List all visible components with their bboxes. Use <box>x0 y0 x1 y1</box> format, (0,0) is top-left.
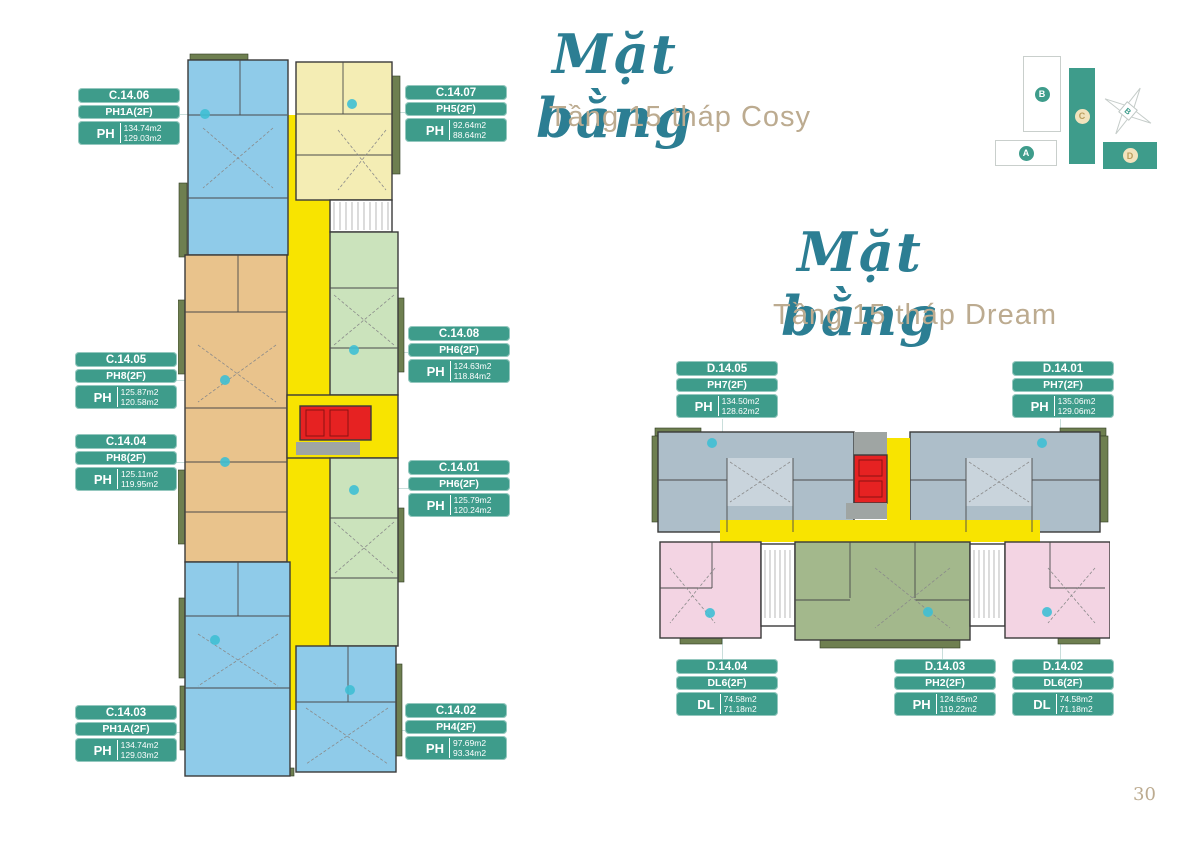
unit-area-values: 134.50m2 128.62m2 <box>718 396 760 416</box>
unit-code: D.14.01 <box>1012 361 1114 376</box>
unit-type: PH2(2F) <box>894 676 996 690</box>
dream-corridor <box>720 520 1040 542</box>
unit-area-1: 125.11m2 <box>121 469 158 479</box>
unit-code: D.14.05 <box>676 361 778 376</box>
unit-type: PH1A(2F) <box>78 105 180 119</box>
unit-areas: PH 92.64m2 88.64m2 <box>405 118 507 142</box>
unit-area-2: 88.64m2 <box>453 130 486 140</box>
cosy-unit-c1401 <box>330 458 398 646</box>
tower-c-badge: C <box>1075 109 1090 124</box>
unit-area-2: 118.84m2 <box>454 371 492 381</box>
unit-area-1: 97.69m2 <box>453 738 486 748</box>
unit-tier: PH <box>695 399 713 414</box>
cosy-elevator-core <box>300 406 371 440</box>
unit-type: DL6(2F) <box>1012 676 1114 690</box>
unit-area-2: 119.95m2 <box>121 479 158 489</box>
unit-area-2: 129.03m2 <box>124 133 162 143</box>
locator-tower-cosy: C <box>1069 68 1095 164</box>
unit-areas: PH 134.74m2 129.03m2 <box>78 121 180 145</box>
unit-code: C.14.08 <box>408 326 510 341</box>
unit-area-2: 71.18m2 <box>724 704 757 714</box>
unit-type: PH8(2F) <box>75 451 177 465</box>
unit-area-1: 125.79m2 <box>454 495 492 505</box>
unit-tier: DL <box>697 697 714 712</box>
unit-type: PH6(2F) <box>408 477 510 491</box>
unit-code: C.14.01 <box>408 460 510 475</box>
unit-area-2: 71.18m2 <box>1060 704 1093 714</box>
unit-label-d-14-05: D.14.05 PH7(2F) PH 134.50m2 128.62m2 <box>676 361 778 418</box>
unit-area-1: 92.64m2 <box>453 120 486 130</box>
unit-label-c-14-08: C.14.08 PH6(2F) PH 124.63m2 118.84m2 <box>408 326 510 383</box>
unit-area-2: 129.03m2 <box>121 750 159 760</box>
unit-code: C.14.03 <box>75 705 177 720</box>
page-number: 30 <box>1133 784 1156 805</box>
unit-area-values: 134.74m2 129.03m2 <box>120 123 162 143</box>
unit-type: PH6(2F) <box>408 343 510 357</box>
unit-label-c-14-01: C.14.01 PH6(2F) PH 125.79m2 120.24m2 <box>408 460 510 517</box>
unit-areas: PH 97.69m2 93.34m2 <box>405 736 507 760</box>
locator-tower-dream: D <box>1103 142 1157 169</box>
unit-tier: PH <box>426 123 444 138</box>
brochure-page: Mặt bằng Tầng 15 tháp Cosy Mặt bằng Tầng… <box>0 0 1201 848</box>
compass-rose-icon: B <box>1100 83 1156 139</box>
locator-building-b: B <box>1023 56 1061 132</box>
unit-tier: PH <box>427 498 445 513</box>
unit-area-1: 74.58m2 <box>724 694 757 704</box>
cosy-unit-c1407 <box>296 62 392 200</box>
unit-label-d-14-01: D.14.01 PH7(2F) PH 135.06m2 129.06m2 <box>1012 361 1114 418</box>
unit-area-1: 74.58m2 <box>1060 694 1093 704</box>
unit-label-c-14-03: C.14.03 PH1A(2F) PH 134.74m2 129.03m2 <box>75 705 177 762</box>
unit-label-d-14-02: D.14.02 DL6(2F) DL 74.58m2 71.18m2 <box>1012 659 1114 716</box>
locator-building-a: A <box>995 140 1057 166</box>
unit-code: D.14.04 <box>676 659 778 674</box>
unit-area-1: 125.87m2 <box>121 387 159 397</box>
unit-label-d-14-03: D.14.03 PH2(2F) PH 124.65m2 119.22m2 <box>894 659 996 716</box>
unit-area-values: 125.87m2 120.58m2 <box>117 387 159 407</box>
unit-area-1: 134.74m2 <box>121 740 159 750</box>
unit-areas: PH 134.74m2 129.03m2 <box>75 738 177 762</box>
unit-area-values: 125.11m2 119.95m2 <box>117 469 158 489</box>
unit-tier: PH <box>426 741 444 756</box>
unit-area-values: 125.79m2 120.24m2 <box>450 495 492 515</box>
unit-area-2: 93.34m2 <box>453 748 486 758</box>
unit-tier: PH <box>1031 399 1049 414</box>
unit-area-values: 124.65m2 119.22m2 <box>936 694 978 714</box>
cosy-core-stair <box>296 442 360 455</box>
cosy-unit-c1403 <box>185 562 290 776</box>
unit-label-c-14-06: C.14.06 PH1A(2F) PH 134.74m2 129.03m2 <box>78 88 180 145</box>
unit-tier: PH <box>913 697 931 712</box>
unit-tier: PH <box>97 126 115 141</box>
unit-code: D.14.03 <box>894 659 996 674</box>
dream-unit-d1402 <box>1005 542 1110 638</box>
unit-code: D.14.02 <box>1012 659 1114 674</box>
building-b-badge: B <box>1035 87 1050 102</box>
unit-tier: DL <box>1033 697 1050 712</box>
unit-tier: PH <box>94 743 112 758</box>
unit-label-c-14-07: C.14.07 PH5(2F) PH 92.64m2 88.64m2 <box>405 85 507 142</box>
unit-label-d-14-04: D.14.04 DL6(2F) DL 74.58m2 71.18m2 <box>676 659 778 716</box>
unit-type: PH7(2F) <box>1012 378 1114 392</box>
cosy-floor-plan <box>178 50 408 782</box>
unit-areas: DL 74.58m2 71.18m2 <box>676 692 778 716</box>
unit-code: C.14.04 <box>75 434 177 449</box>
unit-area-values: 74.58m2 71.18m2 <box>720 694 757 714</box>
unit-label-c-14-02: C.14.02 PH4(2F) PH 97.69m2 93.34m2 <box>405 703 507 760</box>
unit-code: C.14.05 <box>75 352 177 367</box>
dream-unit-d1403 <box>795 542 970 640</box>
building-a-badge: A <box>1019 146 1034 161</box>
dream-floor-plan <box>650 418 1110 653</box>
unit-areas: DL 74.58m2 71.18m2 <box>1012 692 1114 716</box>
site-locator-map: B A C D B <box>995 50 1170 185</box>
unit-area-2: 119.22m2 <box>940 704 978 714</box>
unit-area-values: 97.69m2 93.34m2 <box>449 738 486 758</box>
unit-areas: PH 124.65m2 119.22m2 <box>894 692 996 716</box>
unit-areas: PH 124.63m2 118.84m2 <box>408 359 510 383</box>
unit-areas: PH 135.06m2 129.06m2 <box>1012 394 1114 418</box>
cosy-stair-upper <box>330 200 392 232</box>
cosy-units-c1405-c1404 <box>185 255 287 562</box>
unit-area-1: 134.50m2 <box>722 396 760 406</box>
unit-code: C.14.07 <box>405 85 507 100</box>
dream-unit-d1404 <box>660 542 761 638</box>
unit-label-c-14-04: C.14.04 PH8(2F) PH 125.11m2 119.95m2 <box>75 434 177 491</box>
unit-area-1: 135.06m2 <box>1058 396 1096 406</box>
unit-area-values: 74.58m2 71.18m2 <box>1056 694 1093 714</box>
unit-areas: PH 125.79m2 120.24m2 <box>408 493 510 517</box>
cosy-title-subtitle: Tầng 15 tháp Cosy <box>540 101 820 134</box>
unit-type: PH8(2F) <box>75 369 177 383</box>
tower-d-badge: D <box>1123 148 1138 163</box>
unit-type: PH1A(2F) <box>75 722 177 736</box>
unit-area-2: 120.24m2 <box>454 505 492 515</box>
unit-areas: PH 125.11m2 119.95m2 <box>75 467 177 491</box>
unit-area-values: 134.74m2 129.03m2 <box>117 740 159 760</box>
unit-area-1: 124.65m2 <box>940 694 978 704</box>
unit-area-values: 92.64m2 88.64m2 <box>449 120 486 140</box>
unit-areas: PH 125.87m2 120.58m2 <box>75 385 177 409</box>
dream-core-stair <box>846 503 887 519</box>
unit-area-2: 120.58m2 <box>121 397 159 407</box>
unit-code: C.14.06 <box>78 88 180 103</box>
unit-tier: PH <box>94 472 112 487</box>
dream-core-lobby <box>854 432 887 455</box>
unit-tier: PH <box>427 364 445 379</box>
unit-label-c-14-05: C.14.05 PH8(2F) PH 125.87m2 120.58m2 <box>75 352 177 409</box>
dream-stair-right <box>970 544 1005 626</box>
unit-area-2: 128.62m2 <box>722 406 760 416</box>
unit-area-values: 135.06m2 129.06m2 <box>1054 396 1096 416</box>
unit-tier: PH <box>94 390 112 405</box>
unit-area-1: 124.63m2 <box>454 361 492 371</box>
dream-core-corridor <box>887 438 910 534</box>
cosy-unit-c1408 <box>330 232 398 395</box>
dream-title-subtitle: Tầng 15 tháp Dream <box>770 299 1060 332</box>
unit-area-2: 129.06m2 <box>1058 406 1096 416</box>
unit-type: DL6(2F) <box>676 676 778 690</box>
unit-type: PH5(2F) <box>405 102 507 116</box>
unit-code: C.14.02 <box>405 703 507 718</box>
cosy-unit-c1402 <box>296 646 396 772</box>
unit-type: PH7(2F) <box>676 378 778 392</box>
unit-area-1: 134.74m2 <box>124 123 162 133</box>
unit-type: PH4(2F) <box>405 720 507 734</box>
unit-areas: PH 134.50m2 128.62m2 <box>676 394 778 418</box>
unit-area-values: 124.63m2 118.84m2 <box>450 361 492 381</box>
